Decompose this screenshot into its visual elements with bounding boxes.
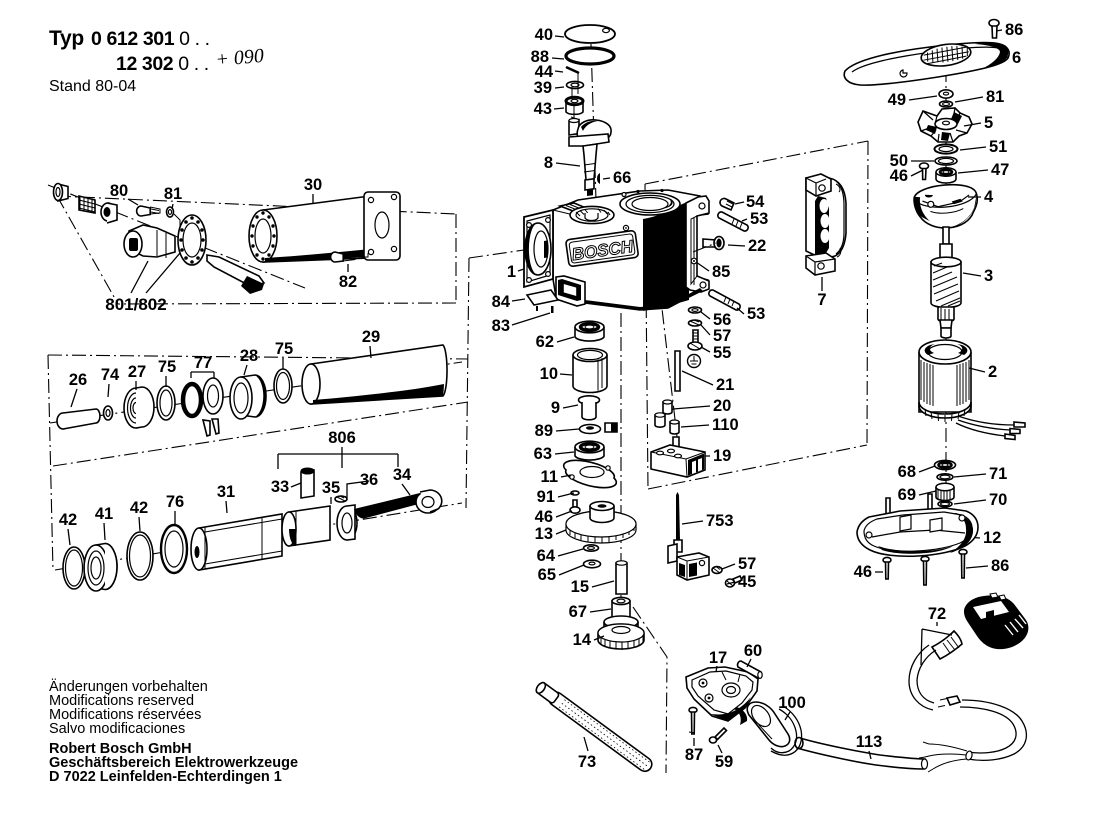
svg-text:75: 75 (275, 340, 293, 358)
svg-text:57: 57 (738, 555, 756, 573)
svg-text:17: 17 (709, 649, 727, 667)
svg-text:76: 76 (166, 493, 184, 511)
svg-text:801/802: 801/802 (105, 295, 166, 314)
svg-text:64: 64 (537, 547, 556, 565)
svg-text:753: 753 (706, 512, 734, 530)
svg-text:73: 73 (578, 753, 596, 771)
svg-text:71: 71 (989, 465, 1007, 483)
svg-text:10: 10 (540, 365, 558, 383)
svg-text:45: 45 (738, 573, 756, 591)
svg-text:47: 47 (991, 161, 1009, 179)
svg-text:60: 60 (744, 642, 762, 660)
svg-text:85: 85 (712, 263, 730, 281)
svg-text:86: 86 (1005, 21, 1023, 39)
svg-text:57: 57 (713, 327, 731, 345)
svg-text:19: 19 (713, 447, 731, 465)
svg-text:46: 46 (854, 563, 872, 581)
svg-text:13: 13 (535, 525, 553, 543)
svg-text:77: 77 (194, 354, 212, 372)
svg-text:86: 86 (991, 557, 1009, 575)
svg-text:15: 15 (571, 578, 589, 596)
svg-text:7: 7 (817, 291, 826, 309)
svg-text:43: 43 (534, 100, 552, 118)
svg-text:82: 82 (339, 273, 357, 291)
svg-text:36: 36 (360, 471, 378, 489)
svg-text:49: 49 (888, 91, 906, 109)
svg-text:D 7022 Leinfelden-Echterdingen: D 7022 Leinfelden-Echterdingen 1 (49, 769, 282, 785)
svg-text:27: 27 (128, 363, 146, 381)
svg-text:72: 72 (928, 605, 946, 623)
svg-text:110: 110 (712, 416, 739, 434)
svg-text:12 302 0 . .: 12 302 0 . . (116, 53, 209, 75)
svg-text:91: 91 (537, 488, 555, 506)
svg-text:21: 21 (716, 376, 734, 394)
svg-text:22: 22 (748, 237, 766, 255)
svg-text:54: 54 (746, 193, 765, 211)
svg-text:6: 6 (1012, 49, 1021, 67)
svg-text:26: 26 (69, 371, 87, 389)
svg-text:46: 46 (890, 167, 908, 185)
svg-text:65: 65 (538, 566, 556, 584)
svg-text:80: 80 (110, 182, 128, 200)
svg-text:41: 41 (95, 505, 113, 523)
svg-text:4: 4 (984, 188, 994, 206)
svg-text:35: 35 (322, 479, 340, 497)
svg-text:29: 29 (362, 328, 380, 346)
svg-text:11: 11 (541, 468, 558, 486)
svg-text:51: 51 (989, 138, 1007, 156)
svg-text:1: 1 (507, 263, 516, 281)
svg-text:33: 33 (271, 478, 289, 496)
svg-text:53: 53 (747, 305, 765, 323)
svg-text:14: 14 (573, 631, 592, 649)
svg-text:83: 83 (492, 317, 510, 335)
svg-text:74: 74 (101, 366, 120, 384)
svg-text:81: 81 (986, 88, 1004, 106)
svg-text:9: 9 (551, 399, 560, 417)
svg-text:3: 3 (984, 267, 993, 285)
svg-text:5: 5 (984, 114, 993, 132)
svg-text:31: 31 (217, 483, 235, 501)
svg-text:75: 75 (158, 358, 176, 376)
svg-text:39: 39 (534, 79, 552, 97)
svg-text:84: 84 (492, 293, 511, 311)
svg-text:42: 42 (130, 499, 148, 517)
svg-text:2: 2 (988, 363, 997, 381)
svg-text:0 612 301 0 . .: 0 612 301 0 . . (91, 28, 210, 50)
svg-text:8: 8 (544, 154, 553, 172)
svg-text:+ 090: + 090 (215, 45, 265, 71)
svg-text:42: 42 (59, 511, 77, 529)
svg-text:69: 69 (898, 486, 916, 504)
svg-text:87: 87 (685, 746, 703, 764)
svg-text:100: 100 (778, 694, 806, 712)
svg-text:81: 81 (164, 185, 182, 203)
svg-text:113: 113 (856, 733, 883, 751)
svg-text:63: 63 (534, 445, 552, 463)
svg-text:12: 12 (983, 529, 1001, 547)
svg-text:40: 40 (535, 26, 553, 44)
svg-text:53: 53 (750, 210, 768, 228)
svg-text:20: 20 (713, 397, 731, 415)
svg-text:62: 62 (536, 333, 554, 351)
svg-text:Salvo modificaciones: Salvo modificaciones (49, 721, 185, 737)
svg-text:46: 46 (535, 508, 553, 526)
svg-text:59: 59 (715, 753, 733, 771)
svg-text:89: 89 (535, 422, 553, 440)
svg-text:806: 806 (328, 429, 356, 447)
svg-text:55: 55 (713, 344, 731, 362)
svg-text:Stand 80-04: Stand 80-04 (49, 78, 136, 95)
svg-text:30: 30 (304, 176, 322, 194)
svg-text:28: 28 (240, 347, 258, 365)
svg-text:67: 67 (569, 603, 587, 621)
svg-text:34: 34 (393, 466, 412, 484)
svg-text:68: 68 (898, 463, 916, 481)
svg-text:66: 66 (613, 169, 631, 187)
svg-text:70: 70 (989, 491, 1007, 509)
svg-text:Typ: Typ (49, 27, 84, 50)
